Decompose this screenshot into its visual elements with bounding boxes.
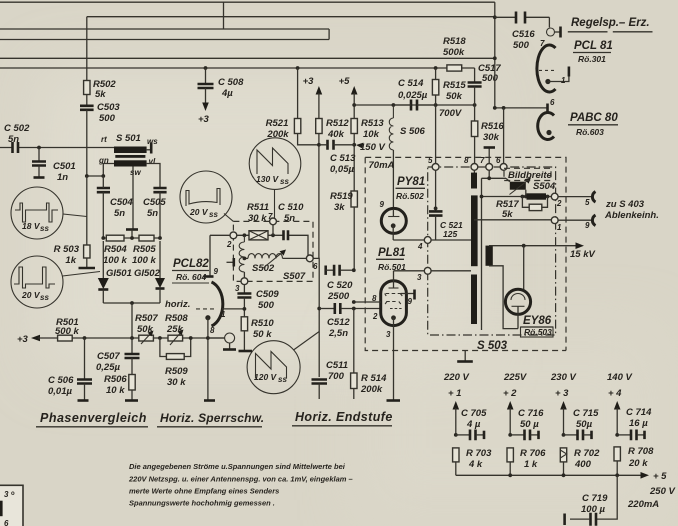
svg-text:Die angegebenen Ströme u.Spann: Die angegebenen Ströme u.Spannungen sind…	[129, 462, 346, 471]
svg-text:500: 500	[99, 113, 116, 124]
svg-text:Phasenvergleich: Phasenvergleich	[40, 411, 147, 425]
svg-text:S 503: S 503	[477, 340, 508, 352]
svg-text:25k: 25k	[166, 324, 184, 335]
svg-text:6: 6	[313, 262, 318, 271]
svg-text:1: 1	[561, 76, 566, 85]
svg-text:16 µ: 16 µ	[629, 418, 648, 429]
svg-text:7: 7	[480, 156, 485, 165]
svg-text:R 514: R 514	[361, 373, 387, 384]
svg-text:C 716: C 716	[518, 408, 544, 419]
svg-text:Regelsp.– Erz.: Regelsp.– Erz.	[571, 17, 650, 29]
svg-text:ws: ws	[147, 137, 158, 146]
svg-text:100 µ: 100 µ	[581, 504, 605, 515]
svg-text:5k: 5k	[95, 89, 106, 100]
svg-text:ss: ss	[280, 177, 289, 186]
svg-text:R516: R516	[481, 121, 504, 132]
svg-text:2: 2	[372, 312, 378, 321]
svg-text:C509: C509	[256, 289, 279, 300]
svg-text:+5: +5	[339, 76, 351, 87]
svg-text:+3: +3	[198, 114, 210, 125]
svg-text:C504: C504	[110, 197, 133, 208]
svg-text:9: 9	[214, 267, 219, 276]
svg-text:0,01µ: 0,01µ	[48, 386, 72, 397]
svg-text:150 V: 150 V	[360, 142, 385, 153]
svg-text:1 k: 1 k	[524, 459, 538, 470]
svg-text:4 k: 4 k	[468, 459, 483, 470]
svg-text:18 V: 18 V	[22, 221, 41, 231]
svg-text:0,25µ: 0,25µ	[96, 362, 120, 373]
svg-text:30 k: 30 k	[248, 213, 267, 224]
svg-text:R521: R521	[266, 118, 289, 129]
svg-text:C 508: C 508	[218, 77, 244, 88]
svg-text:R509: R509	[165, 366, 188, 377]
svg-text:Horiz. Endstufe: Horiz. Endstufe	[295, 410, 393, 424]
svg-text:C503: C503	[97, 102, 120, 113]
svg-text:6: 6	[496, 156, 501, 165]
svg-text:20 V: 20 V	[21, 290, 41, 300]
svg-text:220V Netzspg. u. einer Antenn: 220V Netzspg. u. einer Antennenspg. von …	[128, 475, 353, 484]
svg-text:700V: 700V	[439, 108, 462, 119]
svg-text:140 V: 140 V	[607, 372, 632, 383]
svg-text:50k: 50k	[446, 91, 463, 102]
svg-text:5n: 5n	[147, 208, 158, 219]
svg-text:GI501: GI501	[106, 268, 132, 279]
svg-text:3: 3	[235, 284, 240, 293]
svg-text:C 514: C 514	[398, 78, 424, 89]
svg-text:R 503: R 503	[54, 244, 80, 255]
svg-text:R510: R510	[251, 318, 274, 329]
svg-text:zu S 403: zu S 403	[605, 199, 645, 210]
svg-text:5n: 5n	[8, 134, 19, 145]
svg-text:500: 500	[258, 300, 275, 311]
svg-text:ss: ss	[40, 224, 49, 233]
svg-text:2: 2	[556, 199, 562, 208]
svg-text:R 702: R 702	[574, 448, 600, 459]
svg-text:horiz.: horiz.	[165, 299, 190, 310]
svg-text:R504: R504	[104, 244, 127, 255]
svg-text:R 708: R 708	[628, 446, 654, 457]
svg-text:C512: C512	[327, 317, 350, 328]
svg-text:2: 2	[226, 240, 232, 249]
svg-text:4µ: 4µ	[221, 88, 233, 99]
svg-text:Rö.503: Rö.503	[524, 327, 552, 337]
svg-text:C 715: C 715	[573, 408, 599, 419]
svg-text:500: 500	[482, 73, 499, 84]
svg-text:R508: R508	[165, 313, 188, 324]
svg-text:R507: R507	[135, 313, 158, 324]
svg-text:3: 3	[386, 330, 391, 339]
svg-text:+ 4: + 4	[608, 388, 622, 399]
svg-text:C 513: C 513	[330, 153, 356, 164]
svg-text:4: 4	[417, 242, 423, 251]
svg-text:R519: R519	[330, 191, 353, 202]
svg-text:GI502: GI502	[134, 268, 161, 279]
svg-text:vl: vl	[149, 157, 156, 166]
svg-text:6: 6	[4, 519, 9, 526]
svg-text:PL81: PL81	[378, 247, 406, 259]
svg-text:ss: ss	[278, 375, 287, 384]
svg-text:PABC 80: PABC 80	[570, 112, 618, 124]
svg-text:sw: sw	[130, 168, 141, 177]
svg-text:S504: S504	[533, 181, 556, 192]
svg-text:3: 3	[4, 490, 9, 499]
svg-text:20 k: 20 k	[628, 458, 648, 469]
svg-text:6: 6	[550, 98, 555, 107]
svg-text:ss: ss	[209, 210, 218, 219]
svg-text:S507: S507	[283, 271, 306, 282]
svg-text:120 V: 120 V	[254, 372, 278, 382]
svg-text:PY81: PY81	[397, 176, 425, 188]
svg-text:20 V: 20 V	[189, 207, 209, 217]
svg-text:9: 9	[380, 200, 385, 209]
svg-text:R518: R518	[443, 36, 466, 47]
svg-text:0,05µ: 0,05µ	[330, 164, 354, 175]
svg-text:100 k: 100 k	[103, 255, 127, 266]
svg-text:700: 700	[328, 371, 345, 382]
svg-text:C 520: C 520	[327, 280, 353, 291]
svg-text:PCL 81: PCL 81	[574, 40, 613, 52]
svg-text:R505: R505	[133, 244, 156, 255]
svg-text:30 k: 30 k	[167, 377, 186, 388]
svg-text:S 501: S 501	[116, 133, 141, 144]
svg-text:2,5n: 2,5n	[328, 328, 348, 339]
svg-text:1k: 1k	[65, 255, 76, 266]
svg-text:C516: C516	[512, 29, 535, 40]
svg-text:R513: R513	[361, 118, 384, 129]
svg-text:125: 125	[443, 229, 457, 239]
svg-text:15 kV: 15 kV	[570, 249, 595, 260]
svg-text:+ 1: + 1	[448, 388, 461, 399]
svg-text:Ablenkeinh.: Ablenkeinh.	[604, 210, 659, 221]
svg-text:R506: R506	[104, 374, 127, 385]
svg-text:4 µ: 4 µ	[466, 419, 481, 430]
svg-text:220mA: 220mA	[627, 499, 659, 510]
svg-text:C505: C505	[143, 197, 166, 208]
svg-text:9: 9	[408, 297, 413, 306]
svg-text:40k: 40k	[327, 129, 345, 140]
svg-text:250 V: 250 V	[649, 486, 675, 497]
svg-text:rt: rt	[101, 135, 107, 144]
svg-text:Horiz. Sperrschw.: Horiz. Sperrschw.	[160, 411, 264, 425]
svg-text:R515: R515	[443, 80, 466, 91]
svg-text:8: 8	[372, 294, 377, 303]
svg-text:5k: 5k	[502, 209, 513, 220]
svg-text:C507: C507	[97, 351, 120, 362]
svg-text:Rö. 604: Rö. 604	[176, 272, 207, 282]
svg-text:S 506: S 506	[400, 126, 426, 137]
svg-text:5n: 5n	[284, 213, 295, 224]
svg-text:R 706: R 706	[520, 448, 546, 459]
svg-text:225V: 225V	[503, 372, 527, 383]
svg-text:50 µ: 50 µ	[520, 419, 539, 430]
svg-text:merte Werte ohne Empfang ei: merte Werte ohne Empfang eines Senders	[129, 487, 279, 496]
svg-text:50 k: 50 k	[253, 329, 272, 340]
svg-text:130 V: 130 V	[256, 174, 280, 184]
svg-text:500k: 500k	[443, 47, 465, 58]
svg-text:230 V: 230 V	[550, 372, 576, 383]
svg-text:220 V: 220 V	[443, 372, 469, 383]
svg-text:o: o	[11, 491, 15, 497]
svg-text:2500: 2500	[327, 291, 350, 302]
svg-text:3k: 3k	[334, 202, 345, 213]
svg-text:5n: 5n	[114, 208, 125, 219]
svg-text:500 k: 500 k	[55, 326, 79, 337]
svg-text:Rö.301: Rö.301	[578, 54, 606, 64]
svg-text:70mA: 70mA	[369, 160, 395, 171]
svg-text:100 k: 100 k	[132, 255, 156, 266]
svg-text:3: 3	[417, 273, 422, 282]
svg-text:Spannungswerte hochohmig gem: Spannungswerte hochohmig gemessen .	[129, 499, 275, 508]
svg-text:400: 400	[574, 459, 592, 470]
svg-text:200k: 200k	[360, 384, 383, 395]
svg-text:C 510: C 510	[278, 202, 304, 213]
svg-text:10 k: 10 k	[106, 385, 125, 396]
svg-text:R512: R512	[326, 118, 349, 129]
svg-text:10k: 10k	[363, 129, 380, 140]
svg-text:C 714: C 714	[626, 407, 652, 418]
svg-text:C 705: C 705	[461, 408, 487, 419]
svg-text:9: 9	[585, 221, 590, 230]
svg-text:+3: +3	[303, 76, 315, 87]
svg-text:0,025µ: 0,025µ	[398, 90, 428, 101]
svg-text:+ 5: + 5	[653, 471, 667, 482]
svg-text:C501: C501	[53, 161, 76, 172]
svg-text:C 502: C 502	[4, 123, 30, 134]
svg-text:PCL82: PCL82	[173, 258, 209, 270]
svg-text:1: 1	[557, 223, 562, 232]
svg-text:Rö.501: Rö.501	[378, 262, 406, 272]
svg-text:1n: 1n	[57, 172, 68, 183]
svg-text:Bildbreite: Bildbreite	[508, 170, 553, 181]
svg-text:50µ: 50µ	[576, 419, 593, 430]
svg-text:EY86: EY86	[523, 315, 552, 327]
svg-text:+3: +3	[17, 334, 29, 345]
svg-text:1: 1	[221, 310, 226, 319]
svg-text:Rö.603: Rö.603	[576, 127, 604, 137]
svg-text:8: 8	[464, 156, 469, 165]
svg-text:5: 5	[585, 198, 590, 207]
svg-text:+ 2: + 2	[503, 388, 517, 399]
svg-text:R511: R511	[247, 202, 269, 213]
svg-text:ss: ss	[40, 293, 49, 302]
svg-text:R 703: R 703	[466, 448, 492, 459]
svg-text:8: 8	[210, 326, 215, 335]
svg-text:50k: 50k	[137, 324, 154, 335]
svg-text:C 506: C 506	[48, 375, 74, 386]
svg-text:+ 3: + 3	[555, 388, 569, 399]
svg-text:500: 500	[513, 40, 530, 51]
svg-text:C511: C511	[326, 360, 348, 371]
svg-text:Rö.502: Rö.502	[396, 191, 424, 201]
svg-text:5: 5	[428, 156, 433, 165]
svg-text:30k: 30k	[483, 132, 500, 143]
svg-text:C 719: C 719	[582, 493, 608, 504]
